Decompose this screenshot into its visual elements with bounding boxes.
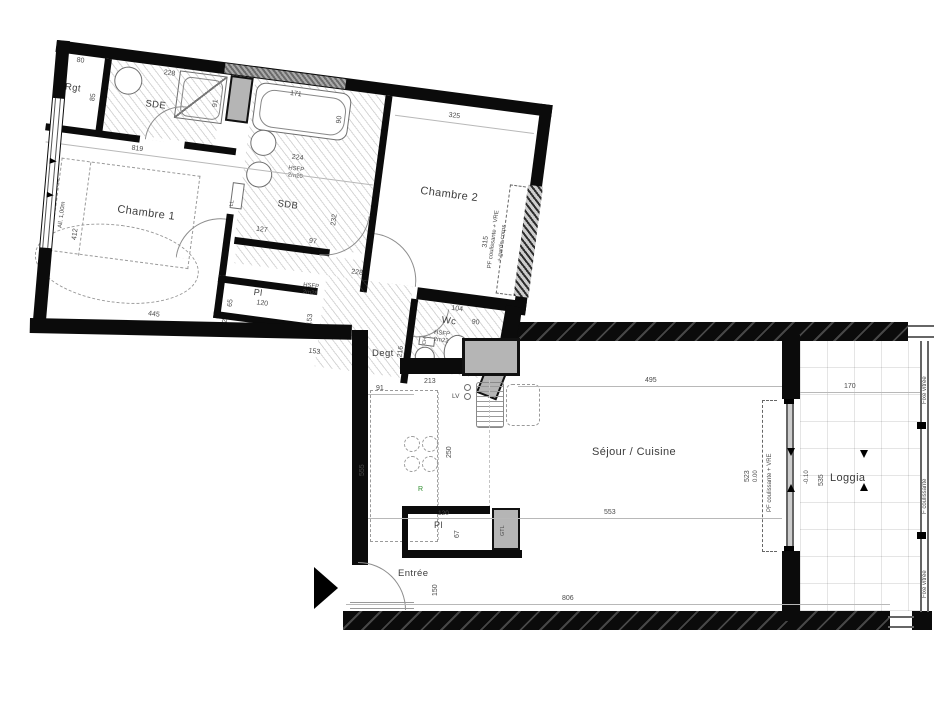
- wall-wc-junction: [400, 358, 464, 374]
- dim-sde-width: 228: [163, 69, 176, 77]
- bathtub-inner-icon: [258, 88, 348, 137]
- faucet-icon: [464, 393, 471, 400]
- ceiling-note-hall: HSFP 2m28: [302, 282, 320, 298]
- sink-icon: [506, 384, 540, 426]
- appliance-label-ll: LL: [229, 200, 236, 207]
- window-note-loggia-top: Fixe vitrée: [922, 376, 928, 404]
- room-label-chambre2: Chambre 2: [420, 185, 479, 204]
- slide-arrow-icon: [860, 450, 868, 458]
- dim-loggia-170: 170: [844, 383, 856, 390]
- window-note-loggia-bot: Fixe vitrée: [922, 570, 928, 598]
- appliance-label-gtl: GTL: [500, 525, 506, 536]
- slide-arrow-icon: [860, 483, 868, 491]
- window-note-loggia-mid: F coulissante: [922, 479, 928, 514]
- wall-loggia-divider-bottom: [782, 551, 800, 621]
- stove-burner-icon: [422, 456, 438, 472]
- dim-sdb-height: 232: [330, 214, 338, 227]
- door-arc-chambre2: [368, 233, 422, 287]
- appliance-label-ch: CH: [421, 337, 428, 345]
- dim-rgt-depth: 85: [89, 93, 97, 102]
- projection-line: [489, 380, 490, 508]
- entrance-arrow-icon: [314, 567, 338, 609]
- loggia-lintel-line: [908, 325, 934, 327]
- room-label-pl-hall: Pl: [253, 287, 263, 298]
- dim-pl-depth: 65: [227, 299, 235, 308]
- dim-sdb-127: 127: [256, 226, 269, 234]
- dimline-495: [518, 386, 782, 387]
- dim-hall-97: 97: [308, 238, 317, 246]
- stove-burner-icon: [422, 436, 438, 452]
- dim-tub-width: 90: [336, 115, 344, 124]
- dim-sdb-width: 224: [291, 154, 304, 162]
- stove-burner-icon: [404, 456, 420, 472]
- dimline-325: [395, 115, 534, 134]
- room-label-pl-entree: Pl: [434, 520, 443, 530]
- room-label-sejour: Séjour / Cuisine: [592, 446, 676, 458]
- dim-degt-91: 91: [376, 385, 384, 392]
- appliance-label-lv: LV: [452, 393, 459, 401]
- dimline-806: [346, 604, 890, 605]
- room-label-loggia: Loggia: [830, 472, 865, 484]
- loggia-sill-line: [888, 616, 914, 618]
- dim-kitchen-250: 250: [446, 446, 453, 458]
- room-label-entree: Entrée: [398, 568, 428, 579]
- wall-pl2-bottom: [402, 550, 522, 558]
- loggia-lintel-line: [908, 336, 934, 338]
- wall-sejour-left: [352, 330, 368, 565]
- floor-plan: Rgt SDE SDB Chambre 1 Chambre 2 Wc Pl HS…: [0, 0, 940, 705]
- stove-burner-icon: [404, 436, 420, 452]
- dim-wc-90: 90: [471, 319, 480, 327]
- gtl-box: [492, 508, 520, 550]
- duct-icon: [225, 75, 254, 124]
- dim-wc-width: 104: [451, 305, 464, 313]
- slide-arrow-icon: [787, 448, 795, 456]
- window-arrow-icon: [49, 158, 56, 165]
- glazing-joint-icon: [917, 422, 926, 429]
- glazing-joint-icon: [917, 532, 926, 539]
- dim-pl2-width: 120: [438, 510, 449, 517]
- dim-sejour-553: 553: [604, 509, 616, 516]
- dim-chambre2-228: 228: [351, 268, 364, 276]
- room-label-degt: Degt: [372, 348, 394, 359]
- dim-kitchen-213: 213: [424, 378, 436, 385]
- dim-chambre2-width: 325: [448, 112, 461, 120]
- window-sejour-loggia-icon: [783, 399, 799, 551]
- window-note-sejour: PF coulissante + VRE: [767, 453, 773, 512]
- dim-sejour-523: 523: [744, 470, 751, 482]
- dim-rgt-width: 80: [76, 57, 85, 65]
- wall-sejour-bottom: [343, 611, 890, 630]
- dim-width-819: 819: [131, 145, 144, 153]
- dim-chambre1-width: 445: [148, 310, 161, 318]
- room-label-wc: Wc: [441, 315, 457, 328]
- sink-drainer-icon: [476, 382, 504, 428]
- dim-pl-width: 120: [256, 299, 269, 307]
- level-loggia: -0.10: [804, 470, 810, 484]
- room-label-rgt: Rgt: [64, 81, 81, 94]
- ceiling-note-wc: HSFP 2m22: [433, 330, 451, 346]
- appliance-label-fridge: R: [418, 486, 423, 494]
- dimline-170: [800, 392, 920, 393]
- duct-icon: [462, 338, 520, 376]
- dim-loggia-535: 535: [818, 474, 825, 486]
- wall-loggia-divider-top: [782, 335, 800, 399]
- dim-left-555: 555: [359, 464, 366, 476]
- dimline-91: [368, 394, 414, 395]
- level-interior: 0.00: [753, 470, 759, 482]
- dim-hall-153: 153: [308, 348, 321, 356]
- dim-pl2-depth: 67: [454, 530, 461, 538]
- loggia-sill-line: [888, 626, 914, 628]
- dim-tub-length: 171: [290, 90, 303, 98]
- dim-sejour-495: 495: [645, 377, 657, 384]
- dim-shower: 91: [212, 99, 220, 108]
- window-arrow-icon: [46, 192, 53, 199]
- wall-loggia-corner: [912, 611, 932, 630]
- faucet-icon: [464, 384, 471, 391]
- slide-arrow-icon: [787, 484, 795, 492]
- dimline-553: [368, 518, 782, 519]
- dim-total-806: 806: [562, 595, 574, 602]
- wall-sejour-top: [518, 322, 908, 341]
- dim-entree-150: 150: [432, 584, 439, 596]
